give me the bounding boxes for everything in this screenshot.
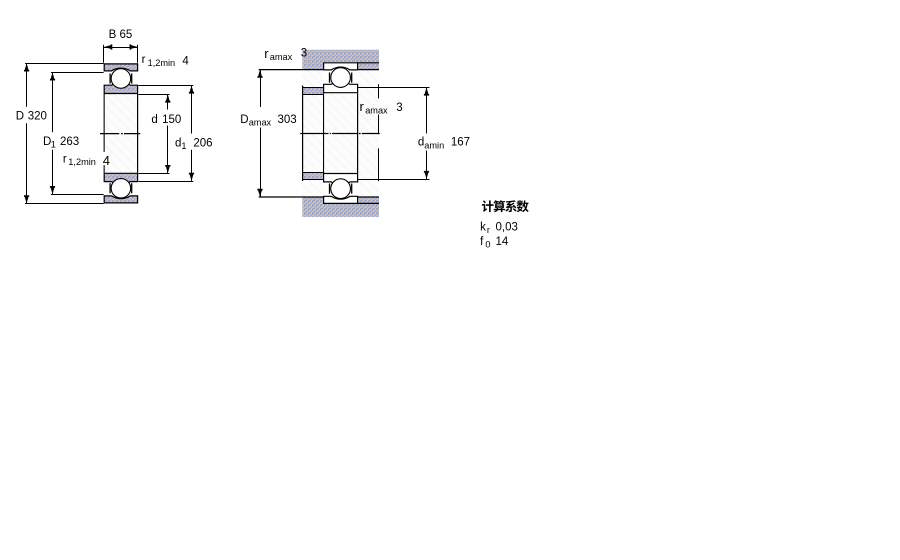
svg-text:amax: amax (270, 52, 293, 62)
svg-text:r: r (360, 99, 365, 114)
svg-text:150: 150 (162, 114, 181, 126)
svg-text:14: 14 (496, 236, 509, 248)
svg-text:amax: amax (365, 106, 388, 116)
svg-text:D: D (16, 111, 24, 123)
svg-text:206: 206 (193, 137, 212, 149)
svg-text:4: 4 (182, 56, 189, 68)
svg-text:1: 1 (51, 139, 56, 149)
svg-text:r: r (63, 153, 67, 165)
svg-text:320: 320 (28, 111, 47, 123)
svg-text:1,2min: 1,2min (68, 157, 96, 167)
svg-text:167: 167 (451, 137, 470, 149)
svg-text:D: D (240, 114, 248, 126)
svg-text:4: 4 (103, 153, 110, 168)
svg-text:303: 303 (278, 114, 297, 126)
svg-text:r: r (264, 46, 269, 61)
svg-text:r: r (142, 54, 146, 66)
svg-text:d: d (151, 114, 157, 126)
svg-text:3: 3 (301, 47, 307, 59)
svg-text:3: 3 (396, 102, 402, 114)
svg-text:B 65: B 65 (109, 29, 133, 41)
svg-text:1,2min: 1,2min (148, 58, 176, 68)
svg-text:r: r (487, 225, 490, 235)
svg-text:amax: amax (249, 117, 272, 127)
svg-text:k: k (480, 222, 486, 234)
svg-text:263: 263 (60, 136, 79, 148)
svg-text:0: 0 (485, 240, 490, 250)
svg-text:amin: amin (424, 141, 444, 151)
svg-text:0,03: 0,03 (496, 222, 518, 234)
svg-text:1: 1 (181, 141, 186, 151)
